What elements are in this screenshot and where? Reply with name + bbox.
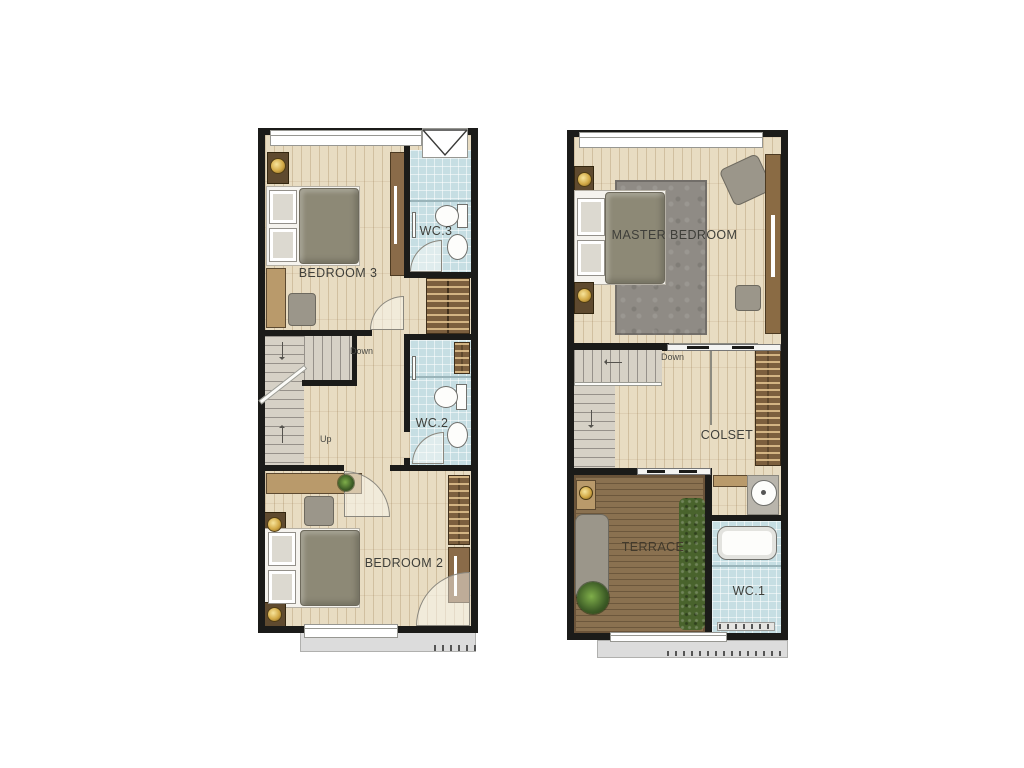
lamp-icon	[267, 607, 282, 622]
lamp-icon	[270, 158, 286, 174]
lamp-icon	[577, 172, 592, 187]
potted-plant-icon	[577, 582, 609, 614]
wardrobe	[390, 152, 405, 276]
stair-flight-top	[304, 336, 354, 384]
balcony-hatch	[434, 645, 476, 651]
wc1-divider	[712, 565, 781, 567]
skylight-triangle-icon	[422, 128, 468, 158]
wall	[404, 334, 478, 340]
window	[579, 132, 763, 148]
floor-plan-right: MASTER BEDROOM Down COLSET TERRACE WC.1	[567, 130, 788, 662]
lamp-icon	[579, 486, 593, 500]
closet-partition	[710, 343, 712, 425]
wall	[390, 465, 478, 471]
plant-icon	[338, 475, 354, 491]
window	[610, 632, 727, 642]
room-label-wc1: WC.1	[725, 584, 773, 598]
wall	[705, 468, 712, 633]
window	[304, 624, 398, 638]
stair-flight-left	[265, 336, 304, 468]
bathtub-icon	[717, 526, 777, 560]
wall	[567, 468, 637, 475]
pillow	[577, 198, 605, 236]
basin-drain-icon	[761, 490, 766, 495]
wc2-divider	[410, 376, 471, 378]
sliding-door-leaf	[647, 470, 665, 473]
wardrobe-shelves	[448, 475, 470, 545]
blanket	[300, 530, 360, 606]
stair-down-arrow-icon	[591, 410, 592, 425]
bench	[266, 268, 286, 328]
room-label-bedroom3: BEDROOM 3	[288, 266, 388, 280]
pillow	[269, 190, 297, 224]
room-label-terrace: TERRACE	[607, 540, 699, 554]
room-label-wc2: WC.2	[410, 416, 454, 430]
wall	[567, 130, 574, 640]
room-label-closet: COLSET	[697, 428, 757, 442]
wall	[404, 272, 478, 278]
wardrobe-shelves	[755, 346, 781, 466]
stair-up-arrow-icon	[282, 428, 283, 443]
floor-plans-canvas: BEDROOM 3 WC.3 Down Up WC.2 BEDROOM 2	[0, 0, 1024, 768]
pillow	[577, 240, 605, 276]
wall	[404, 135, 410, 276]
window	[270, 130, 422, 146]
closet-handle	[771, 215, 775, 277]
step-hatch	[667, 651, 782, 656]
lamp-icon	[267, 517, 282, 532]
stair-down-arrow-icon	[607, 362, 622, 363]
wardrobe-handle	[394, 186, 397, 244]
pillow	[269, 228, 297, 262]
wall	[567, 343, 662, 350]
wall	[781, 130, 788, 640]
chair	[304, 496, 334, 526]
stair-down-arrow-icon	[282, 342, 283, 357]
shower-icon	[412, 356, 416, 380]
sliding-door-leaf	[732, 346, 754, 349]
floor-plan-left: BEDROOM 3 WC.3 Down Up WC.2 BEDROOM 2	[258, 128, 478, 658]
stair-label-down: Down	[661, 352, 684, 362]
wc1-sill-hatch	[719, 624, 773, 629]
wall	[258, 465, 344, 471]
stair-label-down: Down	[350, 346, 373, 356]
wall	[258, 128, 265, 633]
pillow	[268, 570, 296, 604]
hedge-plants	[679, 498, 705, 630]
stair-rail	[574, 382, 662, 386]
stool	[288, 293, 316, 326]
sliding-door-master	[667, 344, 781, 351]
blanket	[299, 188, 359, 264]
wall	[705, 515, 788, 521]
pillow	[268, 532, 296, 566]
sliding-door-leaf	[679, 470, 697, 473]
room-label-master: MASTER BEDROOM	[607, 228, 742, 242]
lamp-icon	[577, 288, 592, 303]
wc3-divider	[410, 200, 471, 202]
room-label-bedroom2: BEDROOM 2	[358, 556, 450, 570]
wall	[471, 128, 478, 633]
wall	[302, 380, 357, 386]
stair-flight-left	[574, 385, 615, 468]
toilet-icon	[434, 386, 458, 408]
shelf-unit	[426, 278, 470, 334]
stool	[735, 285, 761, 311]
wall	[352, 334, 357, 384]
sliding-door-leaf	[687, 346, 709, 349]
stair-label-up: Up	[320, 434, 332, 444]
wc2-niche	[454, 342, 470, 374]
room-label-wc3: WC.3	[416, 224, 456, 238]
